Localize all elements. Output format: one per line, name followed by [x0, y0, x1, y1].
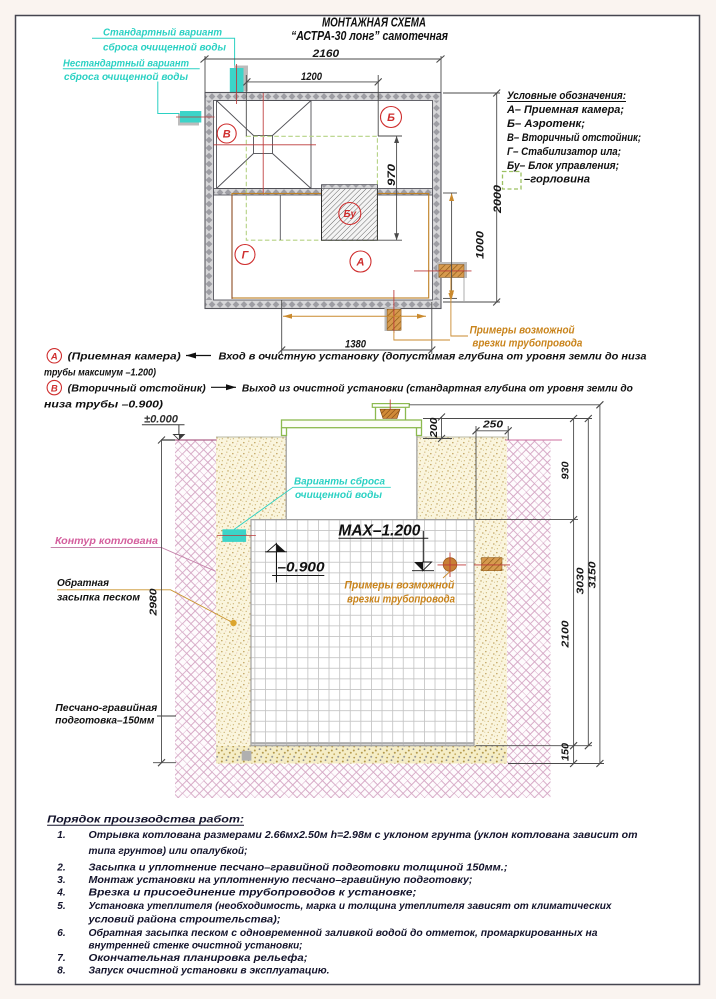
- svg-text:А: А: [50, 352, 58, 363]
- svg-text:2100: 2100: [560, 620, 572, 648]
- svg-text:Обратная: Обратная: [57, 577, 109, 589]
- svg-text:Порядок производства работ:: Порядок производства работ:: [47, 814, 244, 826]
- svg-text:трубы максимум –1.200): трубы максимум –1.200): [44, 367, 157, 379]
- svg-text:Бу: Бу: [344, 209, 357, 220]
- svg-text:970: 970: [386, 163, 398, 186]
- svg-text:Примеры возможной: Примеры возможной: [344, 580, 454, 592]
- svg-text:В– Вторичный отстойник;: В– Вторичный отстойник;: [507, 132, 641, 144]
- svg-text:“АСТРА-30 лонг” самотечная: “АСТРА-30 лонг” самотечная: [291, 29, 449, 43]
- svg-text:7.: 7.: [57, 953, 65, 964]
- svg-text:В: В: [223, 129, 231, 141]
- svg-text:Выход из очистной установки (с: Выход из очистной установки (стандартная…: [242, 382, 633, 394]
- svg-text:Монтаж установки на уплотненну: Монтаж установки на уплотненную песчано–…: [89, 875, 473, 886]
- svg-text:Стандартный вариант: Стандартный вариант: [103, 27, 222, 39]
- svg-text:3030: 3030: [575, 567, 587, 594]
- svg-text:А: А: [356, 257, 365, 269]
- svg-text:3150: 3150: [586, 561, 598, 588]
- svg-text:Врезка и присоединение трубопр: Врезка и присоединение трубопроводов к у…: [89, 886, 417, 898]
- svg-text:засыпка песком: засыпка песком: [57, 592, 140, 604]
- svg-text:врезки трубопровода: врезки трубопровода: [472, 338, 582, 350]
- svg-text:Нестандартный вариант: Нестандартный вариант: [63, 58, 189, 70]
- svg-text:Условные обозначения:: Условные обозначения:: [507, 90, 626, 102]
- svg-text:МОНТАЖНАЯ СХЕМА: МОНТАЖНАЯ СХЕМА: [322, 16, 426, 30]
- svg-text:±0.000: ±0.000: [144, 414, 179, 426]
- svg-text:(Приемная камера): (Приемная камера): [68, 352, 182, 363]
- svg-text:4.: 4.: [56, 887, 65, 898]
- svg-text:В: В: [51, 383, 58, 394]
- svg-text:8.: 8.: [57, 966, 65, 977]
- svg-text:Обратная засыпка песком с одно: Обратная засыпка песком с одновременной …: [89, 927, 598, 939]
- svg-text:подготовка–150мм: подготовка–150мм: [55, 715, 154, 727]
- svg-text:условий района строительства);: условий района строительства);: [87, 915, 280, 926]
- svg-text:Вход в очистную установку (доп: Вход в очистную установку (допустимая гл…: [219, 351, 647, 363]
- svg-text:–горловина: –горловина: [524, 174, 590, 186]
- svg-text:1000: 1000: [475, 230, 487, 259]
- svg-text:Б: Б: [387, 112, 395, 124]
- svg-text:низа трубы –0.900): низа трубы –0.900): [44, 398, 164, 410]
- svg-text:250: 250: [482, 419, 503, 431]
- svg-text:2160: 2160: [312, 48, 341, 60]
- svg-text:–0.900: –0.900: [278, 559, 325, 575]
- svg-text:Варианты сброса: Варианты сброса: [294, 476, 385, 488]
- svg-text:1380: 1380: [345, 339, 367, 351]
- svg-text:МАХ–1.200: МАХ–1.200: [338, 523, 420, 540]
- svg-text:Контур котлована: Контур котлована: [55, 535, 158, 547]
- svg-text:Окончательная планировка релье: Окончательная планировка рельефа;: [89, 952, 308, 964]
- svg-text:Песчано-гравийная: Песчано-гравийная: [55, 702, 157, 714]
- svg-text:сброса очищенной воды: сброса очищенной воды: [64, 71, 188, 83]
- svg-text:Бу– Блок управления;: Бу– Блок управления;: [507, 160, 619, 172]
- svg-text:2980: 2980: [147, 588, 159, 616]
- svg-text:Отрывка котлована размерами 2.: Отрывка котлована размерами 2.66мх2.50м …: [89, 830, 638, 841]
- svg-text:930: 930: [560, 461, 571, 479]
- svg-text:3.: 3.: [57, 875, 65, 886]
- svg-text:внутренней стенке очистной уст: внутренней стенке очистной установки;: [89, 941, 303, 952]
- svg-text:очищенной воды: очищенной воды: [295, 489, 382, 501]
- svg-text:150: 150: [561, 743, 572, 761]
- svg-text:200: 200: [428, 417, 440, 438]
- svg-text:2.: 2.: [56, 862, 65, 873]
- svg-text:Установка утеплителя (необходи: Установка утеплителя (необходимость, мар…: [89, 900, 612, 912]
- svg-text:6.: 6.: [57, 928, 65, 939]
- svg-text:Засыпка и уплотнение песчано–г: Засыпка и уплотнение песчано–гравийной п…: [89, 862, 508, 873]
- svg-text:типа грунтов) или опалубкой;: типа грунтов) или опалубкой;: [89, 845, 248, 857]
- svg-text:Запуск очистной установки в эк: Запуск очистной установки в эксплуатацию…: [89, 966, 330, 977]
- svg-text:сброса очищенной воды: сброса очищенной воды: [103, 42, 226, 54]
- svg-text:Г– Стабилизатор ила;: Г– Стабилизатор ила;: [507, 146, 621, 158]
- svg-text:5.: 5.: [57, 901, 65, 912]
- svg-text:врезки трубопровода: врезки трубопровода: [347, 594, 455, 606]
- svg-text:А– Приемная камера;: А– Приемная камера;: [506, 104, 624, 116]
- svg-text:1200: 1200: [301, 71, 323, 83]
- svg-text:Б– Аэротенк;: Б– Аэротенк;: [507, 118, 585, 130]
- svg-text:(Вторичный отстойник): (Вторичный отстойник): [68, 383, 207, 394]
- svg-text:Примеры возможной: Примеры возможной: [470, 325, 575, 337]
- svg-text:1.: 1.: [57, 830, 65, 841]
